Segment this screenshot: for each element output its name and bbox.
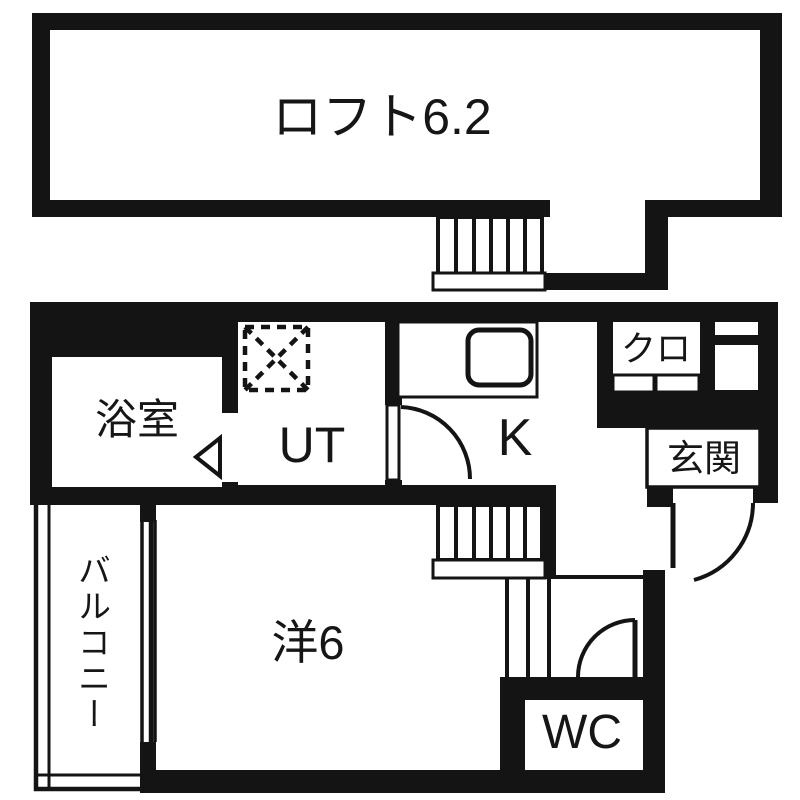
washer-pan-diagonal bbox=[245, 327, 308, 390]
bathroom-floor bbox=[52, 357, 222, 487]
entrance-north-wall-band bbox=[597, 390, 760, 428]
loft-stairwell-wall-bottom bbox=[538, 273, 668, 290]
window-wall-top-stub bbox=[140, 505, 156, 522]
loft-wall-left bbox=[32, 13, 50, 217]
south-wall-of-upper-rooms bbox=[140, 485, 556, 505]
ut-door-leaf bbox=[387, 405, 399, 480]
closet-wall-left bbox=[597, 322, 613, 393]
washer-pan-outline bbox=[245, 327, 308, 390]
closet-wall-right bbox=[700, 322, 715, 390]
loft-wall-top bbox=[32, 13, 782, 30]
floor-plan: ロフト6.2 浴室 UT K クロ 玄関 洋6 WC バルコニー bbox=[0, 0, 800, 800]
loft-outline bbox=[32, 13, 782, 290]
loft-wall-bottom-right bbox=[668, 200, 782, 217]
entrance-door-stub-left bbox=[647, 487, 673, 507]
loft-wall-right bbox=[760, 13, 782, 217]
wc-door-swing-arc bbox=[578, 620, 635, 677]
kitchen-sink bbox=[468, 330, 531, 385]
main-wall-bottom bbox=[140, 770, 665, 793]
stairs-lower bbox=[433, 505, 545, 578]
ut-door-swing-arc bbox=[401, 407, 470, 479]
closet-door-panel-left bbox=[613, 375, 654, 392]
hall-partition-lines bbox=[507, 577, 643, 677]
entrance-door-stub-right bbox=[753, 487, 778, 503]
loft-wall-bottom-left bbox=[32, 200, 550, 217]
main-wall-right-lower bbox=[643, 570, 665, 793]
stairs-lower-landing bbox=[433, 560, 545, 578]
balcony-rail-outer bbox=[36, 501, 151, 789]
washer-pan-diagonal bbox=[245, 327, 308, 390]
balcony-outline bbox=[36, 501, 151, 789]
entrance-door-swing-arc bbox=[694, 503, 753, 580]
closet-door-panel-right bbox=[656, 375, 699, 392]
entrance-floor-box bbox=[647, 428, 760, 487]
stairs-upper-landing bbox=[433, 273, 545, 290]
wc-wall-left bbox=[500, 677, 525, 793]
bathroom-door-opening bbox=[222, 413, 238, 482]
closet-sliding-doors bbox=[613, 375, 699, 392]
floor-plan-drawing bbox=[0, 0, 800, 800]
window-wall-bottom-stub bbox=[140, 742, 156, 772]
washer-pan bbox=[245, 327, 308, 390]
entry-window-sill-bar bbox=[715, 335, 758, 345]
stairs-to-loft bbox=[433, 217, 545, 290]
